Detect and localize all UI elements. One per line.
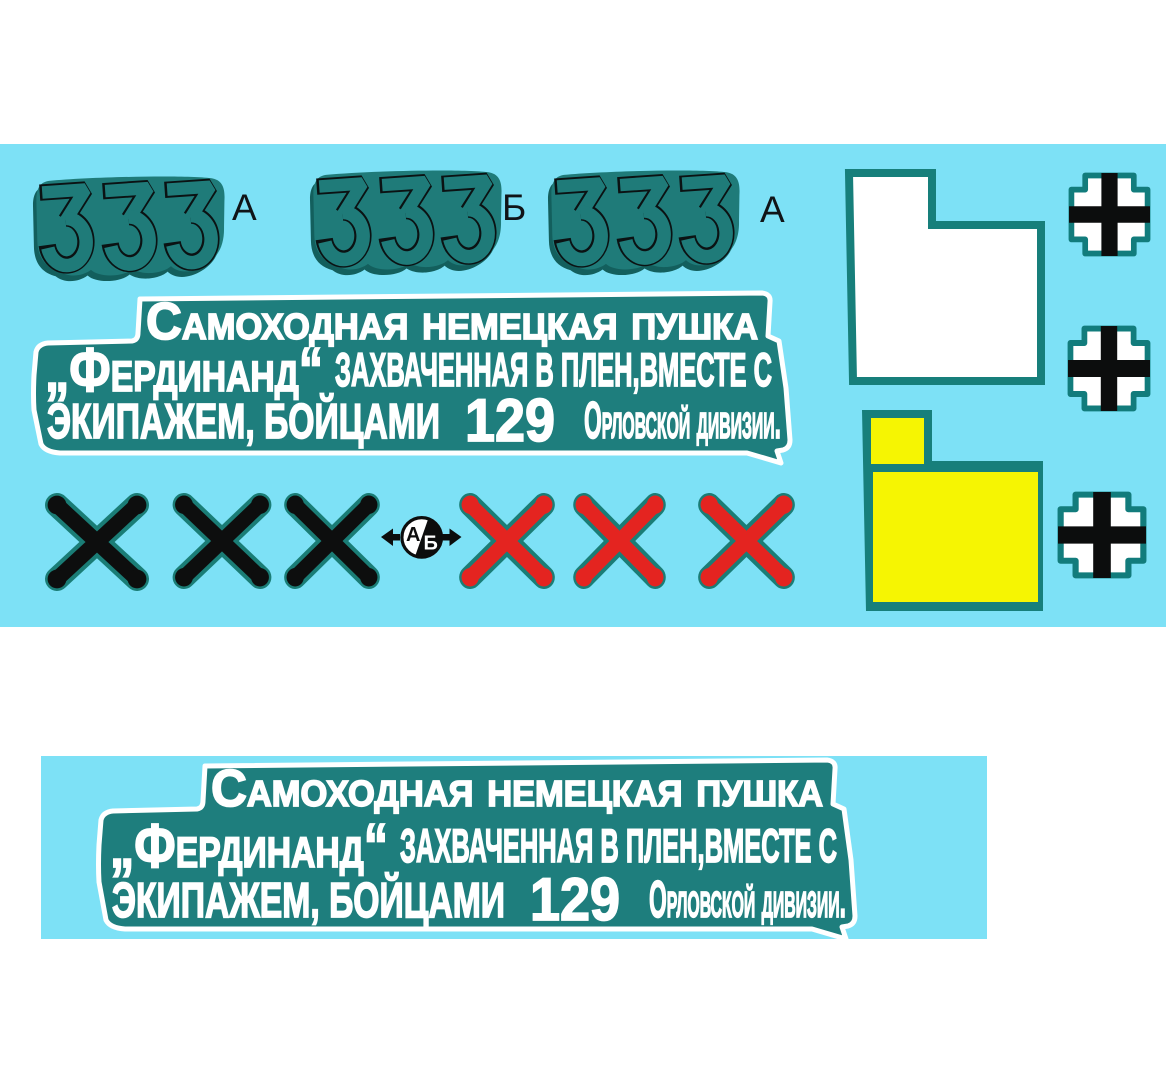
svg-text:ЭКИПАЖЕМ, БОЙЦАМИ: ЭКИПАЖЕМ, БОЙЦАМИ <box>112 873 505 928</box>
svg-text:ЭКИПАЖЕМ, БОЙЦАМИ: ЭКИПАЖЕМ, БОЙЦАМИ <box>47 394 440 449</box>
svg-text:Орловской дивизии.: Орловской дивизии. <box>584 392 781 450</box>
svg-text:Б: Б <box>502 187 526 228</box>
svg-text:ЗАХВАЧЕННАЯ В ПЛЕН,ВМЕСТЕ С: ЗАХВАЧЕННАЯ В ПЛЕН,ВМЕСТЕ С <box>400 819 837 872</box>
svg-text:Орловской дивизии.: Орловской дивизии. <box>649 871 846 929</box>
svg-text:А: А <box>232 187 257 228</box>
svg-text:А: А <box>406 524 420 546</box>
svg-text:Самоходная немецкая пушка: Самоходная немецкая пушка <box>211 760 823 818</box>
svg-text:129: 129 <box>530 866 620 933</box>
svg-text:129: 129 <box>465 387 555 454</box>
svg-text:Б: Б <box>424 533 438 555</box>
svg-text:А: А <box>760 189 785 230</box>
svg-text:„Фердинанд“: „Фердинанд“ <box>110 812 388 881</box>
